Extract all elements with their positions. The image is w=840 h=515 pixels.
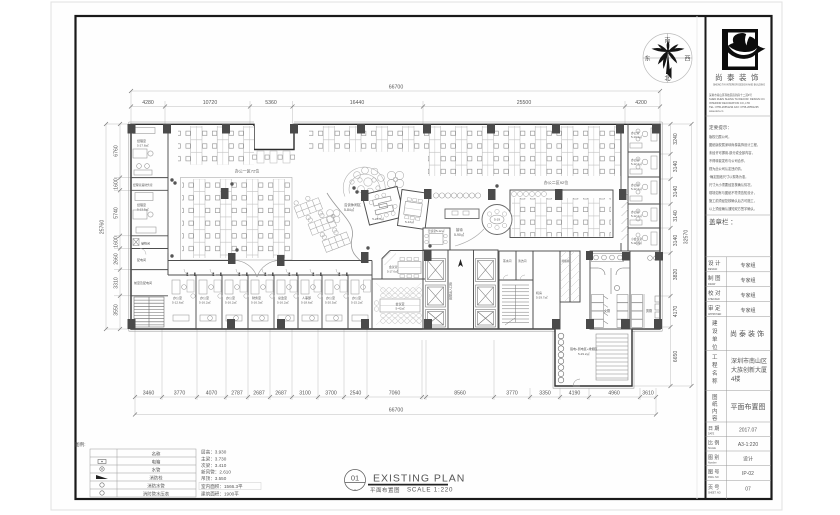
svg-text:平面布置图: 平面布置图 (731, 402, 766, 411)
svg-text:办公室: 办公室 (226, 295, 235, 300)
svg-text:容: 容 (712, 414, 718, 422)
svg-text:5-18.6㎡: 5-18.6㎡ (301, 300, 313, 305)
svg-text:视为此公司认定违约情，: 视为此公司认定违约情， (709, 166, 744, 171)
svg-text:排烟井: 排烟井 (562, 259, 570, 263)
svg-text:电箱: 电箱 (152, 459, 161, 466)
svg-text:储物间: 储物间 (141, 241, 150, 246)
svg-text:SCALE 1:220: SCALE 1:220 (407, 487, 453, 494)
svg-text:3310: 3310 (114, 277, 120, 289)
svg-text:4200: 4200 (635, 100, 647, 106)
svg-text:1600: 1600 (114, 178, 120, 190)
svg-text:5-12㎡: 5-12㎡ (405, 219, 414, 224)
svg-text:办公室: 办公室 (352, 295, 361, 300)
svg-text:机房: 机房 (536, 290, 542, 295)
svg-text:2687: 2687 (275, 391, 287, 397)
svg-text:25760: 25760 (100, 220, 106, 235)
svg-text:CHECKED: CHECKED (708, 298, 720, 301)
svg-text:纸: 纸 (712, 400, 718, 408)
svg-text:8560: 8560 (454, 391, 466, 397)
svg-text:5-17.6㎡: 5-17.6㎡ (387, 270, 398, 274)
svg-text:单: 单 (712, 335, 718, 343)
svg-text:比 例: 比 例 (708, 440, 719, 447)
svg-text:5-12.4㎡: 5-12.4㎡ (631, 187, 642, 191)
svg-text:财务室: 财务室 (252, 295, 261, 300)
svg-text:图: 图 (712, 393, 718, 401)
svg-text:4070: 4070 (206, 391, 218, 397)
svg-text:TEL: 0755-26551234 FAX: 0755-: TEL: 0755-26551234 FAX: 0755-26551235 (709, 105, 759, 109)
svg-text:5-42㎡: 5-42㎡ (395, 306, 404, 311)
svg-text:页 号: 页 号 (708, 485, 719, 491)
svg-text:强电+弱电区+排烟区: 强电+弱电区+排烟区 (570, 346, 598, 351)
svg-text:图例:: 图例: (75, 441, 85, 448)
svg-text:5-13.1㎡: 5-13.1㎡ (631, 135, 642, 139)
svg-text:女厕: 女厕 (604, 308, 610, 313)
svg-text:工: 工 (712, 354, 718, 361)
svg-text:深圳市南山区: 深圳市南山区 (731, 357, 767, 365)
svg-text:16440: 16440 (350, 100, 365, 106)
svg-text:深圳市南山区科技园高新南十二道9号: 深圳市南山区科技园高新南十二道9号 (709, 93, 752, 97)
svg-text:洽谈室5-12㎡: 洽谈室5-12㎡ (428, 229, 445, 233)
svg-text:SHEET. NO: SHEET. NO (708, 492, 721, 495)
svg-text:www.stzs.cn: www.stzs.cn (709, 109, 724, 113)
svg-text:66700: 66700 (389, 408, 404, 414)
svg-text:5-84㎡: 5-84㎡ (344, 207, 355, 212)
svg-text:INTERIOR DECORATION CO.,LTD: INTERIOR DECORATION CO.,LTD (709, 101, 750, 105)
svg-text:3460: 3460 (143, 391, 155, 397)
svg-text:位: 位 (712, 343, 718, 351)
svg-text:01: 01 (351, 474, 359, 483)
svg-text:男厕: 男厕 (646, 308, 652, 313)
svg-text:清洁间: 清洁间 (518, 259, 527, 263)
svg-text:DATE: DATE (708, 433, 715, 436)
svg-text:校 对: 校 对 (708, 289, 721, 297)
svg-text:专家组: 专家组 (740, 307, 755, 314)
svg-text:人事部: 人事部 (302, 295, 311, 300)
svg-text:新风管：2.610: 新风管：2.610 (201, 469, 231, 476)
svg-text:程: 程 (712, 361, 718, 369)
svg-text:以上须经确认通知双方签字确认。: 以上须经确认通知双方签字确认。 (709, 206, 757, 211)
svg-text:5-16.2㎡: 5-16.2㎡ (277, 300, 289, 305)
svg-text:5-15.2㎡: 5-15.2㎡ (351, 300, 363, 305)
svg-text:水管: 水管 (152, 467, 161, 474)
svg-text:5-28.3㎡: 5-28.3㎡ (372, 216, 384, 221)
svg-text:5-29.2㎡: 5-29.2㎡ (578, 351, 590, 356)
svg-text:3820: 3820 (673, 269, 679, 281)
svg-text:设计: 设计 (743, 456, 753, 463)
svg-text:5-16.2㎡: 5-16.2㎡ (199, 300, 211, 305)
svg-text:5-12.4㎡: 5-12.4㎡ (631, 162, 642, 166)
svg-text:5360: 5360 (265, 100, 277, 106)
svg-text:消防管水压表: 消防管水压表 (143, 491, 170, 498)
svg-text:专家组: 专家组 (740, 292, 755, 299)
svg-text:平面布置图: 平面布置图 (370, 486, 400, 494)
svg-text:5-19: 5-19 (494, 218, 500, 222)
svg-text:设: 设 (712, 327, 718, 335)
svg-text:审 定: 审 定 (708, 304, 721, 312)
svg-text:专家组: 专家组 (740, 262, 755, 269)
svg-text:-: - (354, 487, 356, 493)
svg-text:办公室: 办公室 (200, 295, 209, 300)
svg-text:DWG. NO: DWG. NO (708, 476, 719, 479)
svg-text:2660: 2660 (114, 253, 120, 265)
svg-text:茶水间: 茶水间 (503, 259, 512, 263)
svg-text:SCALE: SCALE (708, 447, 716, 450)
svg-text:DRAW: DRAW (708, 283, 716, 286)
svg-text:日 期: 日 期 (708, 426, 719, 432)
svg-text:10720: 10720 (203, 100, 218, 106)
svg-text:北: 北 (664, 75, 670, 83)
svg-text:称: 称 (712, 377, 718, 385)
svg-text:前室及配电间: 前室及配电间 (134, 280, 152, 285)
svg-text:3610: 3610 (642, 391, 654, 397)
svg-text:DESIGN: DESIGN (708, 268, 717, 271)
svg-text:3770: 3770 (506, 391, 518, 397)
svg-text:5-12.8㎡: 5-12.8㎡ (631, 241, 642, 245)
svg-text:办公二区92位: 办公二区92位 (544, 179, 568, 185)
svg-text:配电间: 配电间 (137, 257, 146, 262)
svg-text:4960: 4960 (608, 391, 620, 397)
svg-text:66700: 66700 (389, 85, 404, 91)
svg-text:3140: 3140 (673, 235, 679, 247)
svg-text:5-90㎡: 5-90㎡ (454, 232, 465, 237)
svg-text:办公一区72位: 办公一区72位 (235, 168, 259, 174)
svg-text:次梁：3.410: 次梁：3.410 (201, 462, 227, 469)
svg-text:2540: 2540 (350, 391, 362, 397)
svg-text:主梁：3.730: 主梁：3.730 (201, 456, 227, 463)
svg-text:3350: 3350 (539, 391, 551, 397)
svg-text:3240: 3240 (673, 133, 679, 145)
svg-text:32570: 32570 (684, 230, 690, 245)
svg-text:制 图: 制 图 (708, 274, 721, 282)
svg-text:5-29.7㎡: 5-29.7㎡ (536, 295, 548, 300)
svg-text:3140: 3140 (673, 186, 679, 198)
svg-text:5-12.6㎡: 5-12.6㎡ (172, 300, 184, 305)
svg-text:办公室: 办公室 (326, 295, 335, 300)
svg-text:消防栓: 消防栓 (149, 475, 163, 482)
svg-text:3140: 3140 (673, 161, 679, 173)
svg-text:总监室: 总监室 (278, 295, 287, 300)
svg-text:大族创新大厦: 大族创新大厦 (731, 366, 767, 374)
svg-text:名称: 名称 (152, 451, 161, 458)
svg-text:IP-02: IP-02 (742, 471, 754, 477)
svg-text:版权归属公司，: 版权归属公司， (709, 134, 731, 139)
svg-text:图 号: 图 号 (708, 470, 719, 476)
svg-text:5-27.8㎡: 5-27.8㎡ (137, 143, 149, 148)
svg-text:APPROVED: APPROVED (708, 313, 722, 316)
svg-text:南: 南 (664, 37, 670, 45)
svg-text:未经许可挪用-部分或全部内容，: 未经许可挪用-部分或全部内容， (709, 150, 755, 155)
svg-text:首层出入口处: 首层出入口处 (448, 282, 453, 300)
svg-text:4190: 4190 (569, 391, 581, 397)
svg-text:尚泰装饰: 尚泰装饰 (715, 72, 763, 82)
svg-text:3770: 3770 (174, 391, 186, 397)
svg-text:3100: 3100 (299, 391, 311, 397)
svg-text:内: 内 (712, 407, 718, 415)
svg-text:SHEN ZHEN SHANG TAI DECOR. DES: SHEN ZHEN SHANG TAI DECOR. DESIGN CO. (709, 97, 766, 101)
svg-text:5-13.5㎡: 5-13.5㎡ (137, 207, 149, 212)
svg-text:EXISTING PLAN: EXISTING PLAN (373, 473, 465, 485)
svg-text:5740: 5740 (114, 207, 120, 219)
svg-text:消防水管: 消防水管 (147, 483, 165, 490)
svg-text:东: 东 (644, 55, 650, 63)
svg-text:6760: 6760 (114, 145, 120, 157)
svg-text:经理室: 经理室 (137, 202, 146, 207)
svg-text:经理室: 经理室 (137, 138, 146, 143)
svg-text:专家组: 专家组 (740, 277, 755, 284)
svg-text:尚泰装饰: 尚泰装饰 (730, 329, 766, 338)
svg-text:名: 名 (712, 369, 718, 377)
svg-text:层高：3.930: 层高：3.930 (201, 449, 227, 456)
svg-text:1600: 1600 (114, 236, 120, 248)
svg-text:现场如有与图纸不符须告知设计，: 现场如有与图纸不符须告知设计， (709, 190, 757, 195)
svg-text:2787: 2787 (231, 391, 243, 397)
svg-text:5-20.5㎡: 5-20.5㎡ (325, 300, 337, 305)
svg-text:4170: 4170 (673, 306, 679, 318)
svg-text:5-16.2㎡: 5-16.2㎡ (225, 300, 237, 305)
svg-text:Number: Number (708, 462, 717, 465)
svg-text:施工前须经复核确认后方可施工，: 施工前须经复核确认后方可施工， (709, 198, 757, 203)
svg-text:5-16.3㎡: 5-16.3㎡ (251, 300, 263, 305)
svg-text:西: 西 (684, 56, 690, 63)
svg-text:定要提示：: 定要提示： (709, 124, 732, 131)
svg-text:办公室: 办公室 (173, 295, 182, 300)
svg-text:建: 建 (712, 319, 718, 327)
svg-text:7060: 7060 (389, 391, 401, 397)
svg-text:4280: 4280 (142, 100, 154, 106)
svg-text:经理室兼财务室: 经理室兼财务室 (133, 183, 153, 187)
svg-text:接待: 接待 (456, 227, 463, 232)
svg-text:25500: 25500 (517, 100, 532, 106)
svg-text:4楼: 4楼 (731, 375, 740, 383)
svg-text:图纸版权属深圳尚泰装饰设计工程，: 图纸版权属深圳尚泰装饰设计工程， (709, 142, 760, 147)
svg-text:3140: 3140 (673, 210, 679, 222)
svg-text:5-12.4㎡: 5-12.4㎡ (631, 214, 642, 218)
svg-text:07: 07 (745, 487, 751, 493)
svg-text:3700: 3700 (325, 391, 337, 397)
svg-text:会议室: 会议室 (389, 265, 398, 269)
svg-text:不得转载发布与公司合作，: 不得转载发布与公司合作， (709, 158, 747, 163)
svg-text:盖章栏 ：: 盖章栏 ： (709, 217, 737, 226)
svg-text:室内面积：1566.3平: 室内面积：1566.3平 (201, 483, 243, 490)
svg-text:尺寸大小须要经复核确认情况，: 尺寸大小须要经复核确认情况， (709, 182, 754, 187)
svg-text:洽谈休闲区: 洽谈休闲区 (344, 202, 362, 207)
svg-text:A3-1:220: A3-1:220 (738, 442, 759, 448)
svg-text:2687: 2687 (253, 391, 265, 397)
svg-text:6650: 6650 (673, 351, 679, 363)
svg-text:设 计: 设 计 (708, 259, 721, 267)
svg-text:建筑面积：1900平: 建筑面积：1900平 (201, 491, 239, 498)
svg-text:3550: 3550 (114, 304, 120, 316)
svg-text:图 别: 图 别 (708, 454, 719, 461)
svg-text:·确定图纸尺寸以现场为准，: ·确定图纸尺寸以现场为准， (709, 174, 748, 179)
svg-text:2017.07: 2017.07 (739, 428, 757, 434)
svg-text:SHENG TAI INTERIOR DESIGN AND: SHENG TAI INTERIOR DESIGN AND BUILDING (713, 84, 765, 87)
svg-text:会议室: 会议室 (395, 301, 404, 306)
